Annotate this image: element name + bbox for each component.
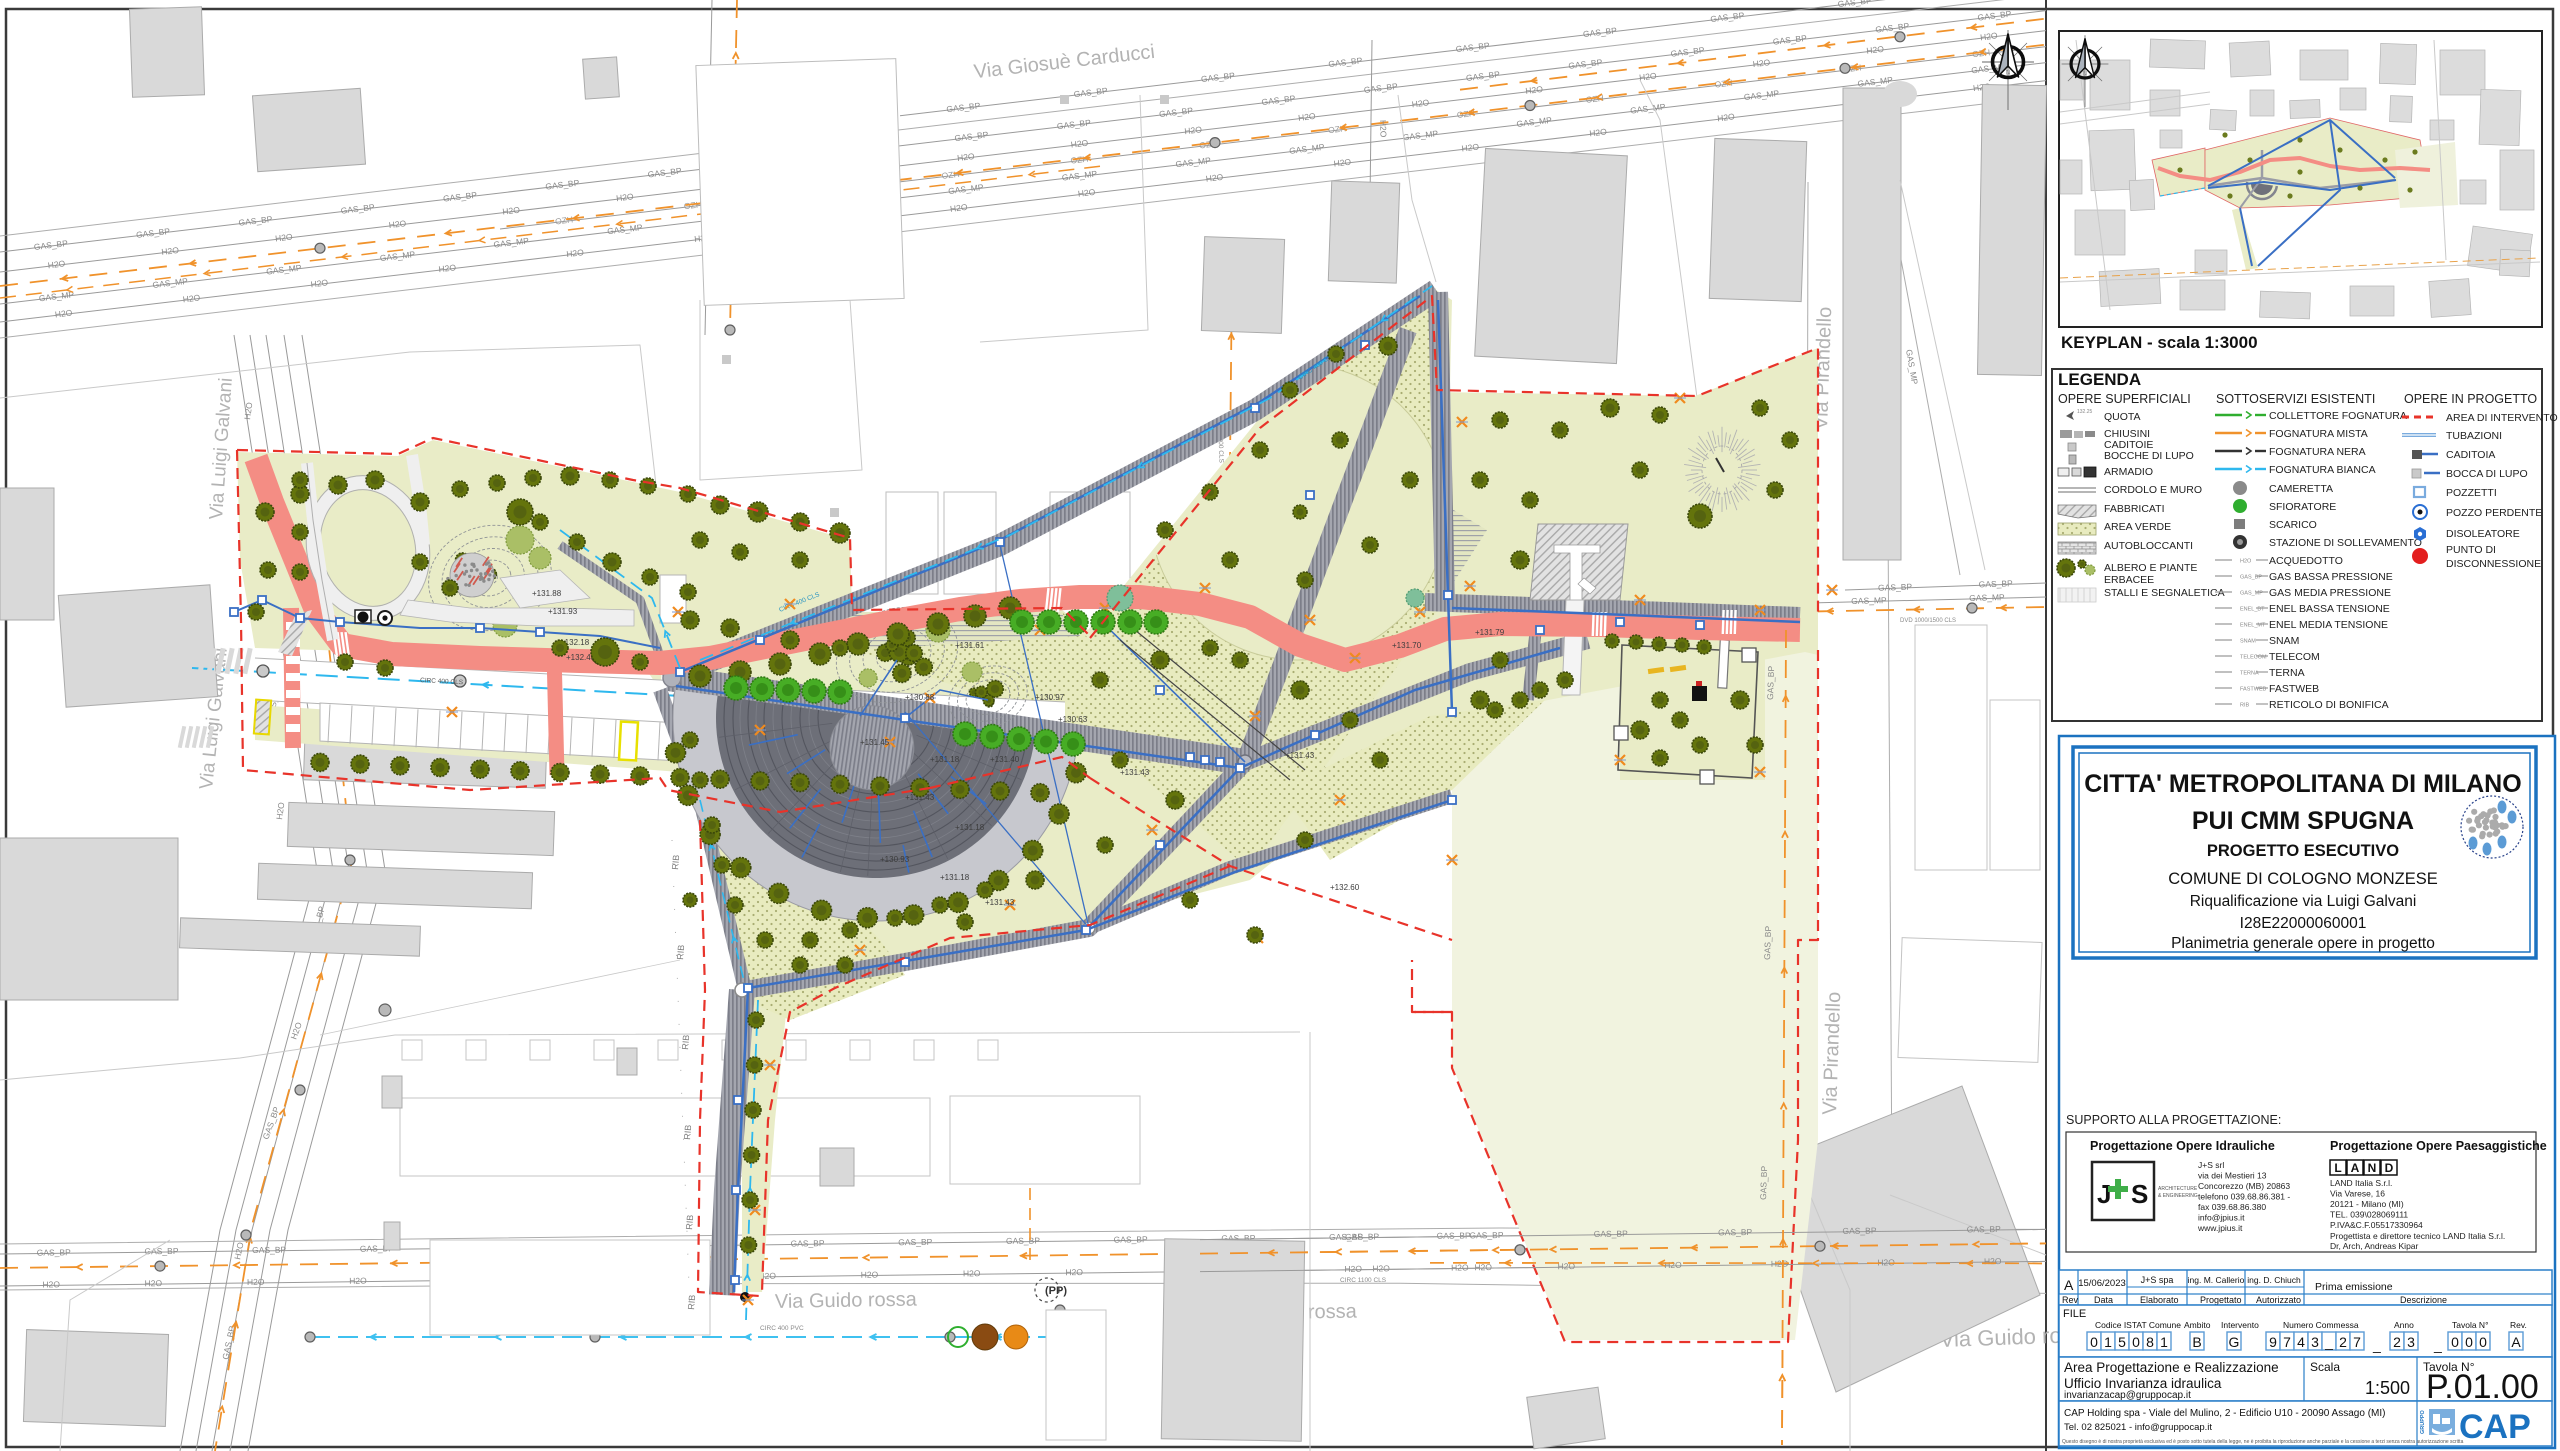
svg-text:H2O: H2O bbox=[1070, 138, 1089, 150]
svg-text:AREA DI INTERVENTO: AREA DI INTERVENTO bbox=[2446, 412, 2558, 424]
svg-text:H2O: H2O bbox=[1333, 157, 1352, 169]
svg-text:STALLI E SEGNALETICA: STALLI E SEGNALETICA bbox=[2104, 587, 2225, 599]
svg-text:TUBAZIONI: TUBAZIONI bbox=[2446, 430, 2502, 442]
svg-text:FASTWEB: FASTWEB bbox=[2269, 683, 2319, 695]
svg-text:3: 3 bbox=[2407, 1334, 2415, 1350]
svg-text:H2O: H2O bbox=[275, 231, 294, 243]
svg-text:RIB: RIB bbox=[675, 944, 686, 960]
svg-text:ALBERO E PIANTE: ALBERO E PIANTE bbox=[2104, 562, 2197, 574]
svg-text:Concorezzo (MB) 20863: Concorezzo (MB) 20863 bbox=[2198, 1181, 2290, 1191]
svg-text:GAS_BP: GAS_BP bbox=[1762, 925, 1773, 960]
svg-text:Autorizzato: Autorizzato bbox=[2256, 1295, 2301, 1305]
svg-text:G: G bbox=[2229, 1334, 2240, 1350]
svg-text:Codice ISTAT Comune: Codice ISTAT Comune bbox=[2095, 1320, 2181, 1330]
svg-text:RIB: RIB bbox=[2240, 703, 2250, 709]
svg-text:CAP Holding spa - Viale del Mu: CAP Holding spa - Viale del Mulino, 2 - … bbox=[2064, 1408, 2385, 1419]
svg-text:CIRC 400 PVC: CIRC 400 PVC bbox=[760, 1325, 804, 1332]
svg-text:H2O: H2O bbox=[47, 258, 66, 270]
svg-text:STAZIONE DI SOLLEVAMENTO: STAZIONE DI SOLLEVAMENTO bbox=[2269, 537, 2422, 549]
svg-text:H2O: H2O bbox=[161, 245, 180, 257]
svg-text:DISOLEATORE: DISOLEATORE bbox=[2446, 528, 2520, 540]
svg-text:GAS_BP: GAS_BP bbox=[1765, 665, 1776, 700]
svg-text:ARMADIO: ARMADIO bbox=[2104, 466, 2153, 478]
svg-text:+132.60: +132.60 bbox=[1330, 883, 1360, 892]
svg-text:Prima emissione: Prima emissione bbox=[2315, 1281, 2393, 1293]
svg-text:1:500: 1:500 bbox=[2365, 1378, 2410, 1398]
svg-text:L: L bbox=[2334, 1161, 2341, 1175]
svg-text:H2O: H2O bbox=[1372, 1263, 1390, 1273]
svg-text:2: 2 bbox=[2393, 1334, 2401, 1350]
svg-text:RIB: RIB bbox=[684, 1214, 695, 1230]
svg-text:1: 1 bbox=[2160, 1334, 2168, 1350]
svg-text:BOCCA DI LUPO: BOCCA DI LUPO bbox=[2446, 468, 2528, 480]
svg-text:H2O: H2O bbox=[54, 307, 73, 319]
svg-text:RIB: RIB bbox=[670, 854, 681, 870]
svg-text:+131.43: +131.43 bbox=[985, 898, 1015, 907]
svg-text:AREA VERDE: AREA VERDE bbox=[2104, 521, 2171, 533]
svg-text:Numero Commessa: Numero Commessa bbox=[2283, 1320, 2359, 1330]
svg-text:DVD 1000/1500 CLS: DVD 1000/1500 CLS bbox=[1900, 618, 1956, 624]
svg-text:H2O: H2O bbox=[1451, 1262, 1469, 1272]
svg-text:SNAM: SNAM bbox=[2269, 635, 2299, 647]
svg-text:AUTOBLOCCANTI: AUTOBLOCCANTI bbox=[2104, 540, 2193, 552]
svg-text:invarianzacap@gruppocap.it: invarianzacap@gruppocap.it bbox=[2064, 1390, 2191, 1401]
svg-text:H2O: H2O bbox=[1378, 120, 1389, 138]
svg-text:GAS_BP: GAS_BP bbox=[1878, 582, 1913, 593]
svg-text:+131.18: +131.18 bbox=[955, 823, 985, 832]
svg-text:_: _ bbox=[2324, 1334, 2333, 1350]
svg-text:N: N bbox=[2368, 1161, 2377, 1175]
svg-text:GAS_BP: GAS_BP bbox=[144, 1246, 178, 1256]
svg-text:Area Progettazione e Realizzaz: Area Progettazione e Realizzazione bbox=[2064, 1360, 2279, 1375]
svg-text:H2O: H2O bbox=[1877, 1257, 1895, 1267]
svg-text:H2O: H2O bbox=[1980, 30, 1999, 42]
svg-text:Data: Data bbox=[2094, 1295, 2113, 1305]
svg-text:3: 3 bbox=[2311, 1334, 2319, 1350]
svg-text:H2O: H2O bbox=[1461, 141, 1480, 153]
svg-text:Rev: Rev bbox=[2062, 1295, 2079, 1305]
svg-text:_: _ bbox=[2372, 1337, 2381, 1353]
svg-text:H2O: H2O bbox=[1866, 44, 1885, 56]
svg-text:PUNTO DI: PUNTO DI bbox=[2446, 544, 2496, 556]
svg-text:GAS_BP: GAS_BP bbox=[1718, 1227, 1752, 1237]
svg-text:Via Guido rossa: Via Guido rossa bbox=[775, 1289, 918, 1313]
svg-text:5: 5 bbox=[2118, 1334, 2126, 1350]
svg-text:8: 8 bbox=[2146, 1334, 2154, 1350]
svg-text:GAS_BP: GAS_BP bbox=[1842, 1225, 1876, 1235]
svg-text:FOGNATURA MISTA: FOGNATURA MISTA bbox=[2269, 428, 2368, 440]
svg-text:GAS_BP: GAS_BP bbox=[1469, 1230, 1503, 1240]
svg-text:+131.40: +131.40 bbox=[990, 755, 1020, 764]
svg-text:H2O: H2O bbox=[1065, 1267, 1083, 1277]
svg-text:H2O: H2O bbox=[861, 1269, 879, 1279]
svg-text:CAMERETTA: CAMERETTA bbox=[2269, 483, 2333, 495]
svg-text:RIB: RIB bbox=[682, 1124, 693, 1140]
svg-text:H2O: H2O bbox=[310, 277, 329, 289]
svg-text:SNAM: SNAM bbox=[2240, 639, 2256, 645]
svg-text:J+S srl: J+S srl bbox=[2198, 1160, 2224, 1170]
svg-text:GAS_BP: GAS_BP bbox=[252, 1245, 286, 1255]
svg-text:4: 4 bbox=[2297, 1334, 2305, 1350]
svg-text:H2O: H2O bbox=[1752, 57, 1771, 69]
svg-text:+131.61: +131.61 bbox=[955, 641, 985, 650]
svg-text:H2O: H2O bbox=[1525, 84, 1544, 96]
svg-text:A: A bbox=[2351, 1161, 2360, 1175]
svg-text:9: 9 bbox=[2269, 1334, 2277, 1350]
svg-text:15/06/2023: 15/06/2023 bbox=[2078, 1278, 2126, 1289]
svg-text:+131.93: +131.93 bbox=[548, 607, 578, 616]
svg-text:H2O: H2O bbox=[1411, 97, 1430, 109]
svg-text:LAND Italia S.r.l.: LAND Italia S.r.l. bbox=[2330, 1178, 2392, 1188]
svg-text:H2O: H2O bbox=[42, 1279, 60, 1289]
svg-text:ing. D. Chiuch: ing. D. Chiuch bbox=[2247, 1275, 2301, 1285]
svg-text:H2O: H2O bbox=[145, 1278, 163, 1288]
svg-text:& ENGINEERING: & ENGINEERING bbox=[2158, 1193, 2198, 1199]
svg-text:GAS_BP: GAS_BP bbox=[790, 1238, 824, 1248]
svg-text:H2O: H2O bbox=[1664, 1260, 1682, 1270]
svg-text:H2O: H2O bbox=[963, 1268, 981, 1278]
svg-text:TELECOM: TELECOM bbox=[2269, 651, 2320, 663]
svg-text:QUOTA: QUOTA bbox=[2104, 411, 2141, 423]
svg-text:www.jpius.it: www.jpius.it bbox=[2197, 1223, 2243, 1233]
svg-text:+130.93: +130.93 bbox=[880, 855, 910, 864]
svg-text:A: A bbox=[2064, 1277, 2074, 1293]
svg-text:H2O: H2O bbox=[1589, 126, 1608, 138]
svg-text:+131.18: +131.18 bbox=[930, 755, 960, 764]
svg-text:GAS_BP: GAS_BP bbox=[1967, 1224, 2001, 1234]
svg-text:PROGETTO ESECUTIVO: PROGETTO ESECUTIVO bbox=[2207, 842, 2399, 860]
svg-text:H2O: H2O bbox=[1344, 1264, 1362, 1274]
svg-text:SUPPORTO ALLA PROGETTAZIONE:: SUPPORTO ALLA PROGETTAZIONE: bbox=[2066, 1113, 2281, 1127]
svg-text:7: 7 bbox=[2283, 1334, 2291, 1350]
svg-text:H2O: H2O bbox=[438, 262, 457, 274]
svg-text:GAS_BP: GAS_BP bbox=[1345, 1231, 1379, 1241]
svg-text:+131.45: +131.45 bbox=[860, 738, 890, 747]
svg-text:via dei Mestieri 13: via dei Mestieri 13 bbox=[2198, 1171, 2267, 1181]
svg-text:GRUPPO: GRUPPO bbox=[2420, 1409, 2426, 1434]
svg-text:fax 039.68.86.380: fax 039.68.86.380 bbox=[2198, 1202, 2266, 1212]
svg-text:CIRC 1100 CLS: CIRC 1100 CLS bbox=[1340, 1277, 1387, 1284]
svg-text:ing. M. Callerio: ing. M. Callerio bbox=[2188, 1275, 2245, 1285]
svg-text:Questo disegno è di nostra pro: Questo disegno è di nostra proprietà esc… bbox=[2062, 1439, 2464, 1445]
svg-text:OPERE IN PROGETTO: OPERE IN PROGETTO bbox=[2404, 392, 2537, 406]
svg-text:H2O: H2O bbox=[1205, 172, 1224, 184]
svg-text:RIB: RIB bbox=[680, 1034, 691, 1050]
svg-text:J: J bbox=[2097, 1179, 2111, 1209]
svg-text:DISCONNESSIONE: DISCONNESSIONE bbox=[2446, 558, 2541, 570]
svg-text:J+S spa: J+S spa bbox=[2141, 1275, 2174, 1285]
svg-text:7: 7 bbox=[2353, 1334, 2361, 1350]
svg-text:FILE: FILE bbox=[2063, 1308, 2086, 1320]
svg-text:ERBACEE: ERBACEE bbox=[2104, 574, 2154, 586]
svg-text:CORDOLO E MURO: CORDOLO E MURO bbox=[2104, 484, 2202, 496]
svg-text:TERNA: TERNA bbox=[2269, 667, 2305, 679]
svg-text:CADITOIA: CADITOIA bbox=[2446, 449, 2495, 461]
svg-text:Progettazione Opere Idrauliche: Progettazione Opere Idrauliche bbox=[2090, 1139, 2275, 1153]
svg-text:GAS_BP: GAS_BP bbox=[1594, 1228, 1628, 1238]
svg-text:20121 - Milano (MI): 20121 - Milano (MI) bbox=[2330, 1199, 2404, 1209]
svg-text:N: N bbox=[2005, 70, 2010, 77]
svg-text:H2O: H2O bbox=[502, 205, 521, 217]
svg-text:2: 2 bbox=[2339, 1334, 2347, 1350]
svg-text:COLLETTORE FOGNATURA: COLLETTORE FOGNATURA bbox=[2269, 410, 2407, 422]
svg-text:GAS_BP: GAS_BP bbox=[1979, 578, 2014, 589]
svg-text:H2O: H2O bbox=[2240, 559, 2252, 565]
svg-text:Planimetria generale opere in: Planimetria generale opere in progetto bbox=[2171, 935, 2435, 952]
svg-text:H2O: H2O bbox=[1639, 70, 1658, 82]
svg-text:Descrizione: Descrizione bbox=[2400, 1295, 2447, 1305]
svg-text:1: 1 bbox=[2104, 1334, 2112, 1350]
svg-text:H2O: H2O bbox=[1717, 111, 1736, 123]
svg-text:GAS_BP: GAS_BP bbox=[1758, 1165, 1769, 1200]
svg-text:FABBRICATI: FABBRICATI bbox=[2104, 503, 2164, 515]
svg-text:I28E22000060001: I28E22000060001 bbox=[2240, 915, 2367, 932]
svg-text:H2O: H2O bbox=[1077, 187, 1096, 199]
svg-text:ENEL BASSA TENSIONE: ENEL BASSA TENSIONE bbox=[2269, 603, 2390, 615]
svg-text:Rev.: Rev. bbox=[2510, 1320, 2527, 1330]
svg-text:Tel. 02 825021 - info@gruppoca: Tel. 02 825021 - info@gruppocap.it bbox=[2064, 1422, 2212, 1433]
svg-text:0: 0 bbox=[2451, 1334, 2459, 1350]
svg-text:H2O: H2O bbox=[1984, 1256, 2002, 1266]
svg-text:telefono 039.68.86.381 -: telefono 039.68.86.381 - bbox=[2198, 1192, 2290, 1202]
svg-text:PUI CMM SPUGNA: PUI CMM SPUGNA bbox=[2192, 807, 2414, 835]
svg-text:+131.70: +131.70 bbox=[1392, 641, 1422, 650]
svg-text:H2O: H2O bbox=[349, 1276, 367, 1286]
svg-text:Scala: Scala bbox=[2310, 1360, 2340, 1374]
svg-text:Intervento: Intervento bbox=[2221, 1320, 2259, 1330]
svg-text:H2O: H2O bbox=[616, 191, 635, 203]
svg-text:GAS_BP: GAS_BP bbox=[1006, 1235, 1040, 1245]
svg-text:H2O: H2O bbox=[957, 151, 976, 163]
svg-text:D: D bbox=[2385, 1161, 2394, 1175]
svg-text:ENEL MEDIA TENSIONE: ENEL MEDIA TENSIONE bbox=[2269, 619, 2388, 631]
svg-text:FOGNATURA BIANCA: FOGNATURA BIANCA bbox=[2269, 464, 2376, 476]
svg-text:0: 0 bbox=[2479, 1334, 2487, 1350]
svg-text:SCARICO: SCARICO bbox=[2269, 519, 2317, 531]
svg-text:GAS BASSA PRESSIONE: GAS BASSA PRESSIONE bbox=[2269, 571, 2393, 583]
svg-text:+131.79: +131.79 bbox=[1475, 628, 1505, 637]
svg-text:+130.97: +130.97 bbox=[1035, 693, 1065, 702]
svg-text:Tavola N°: Tavola N° bbox=[2452, 1320, 2488, 1330]
svg-text:+131.43: +131.43 bbox=[1285, 751, 1315, 760]
svg-text:GAS_BP: GAS_BP bbox=[1114, 1234, 1148, 1244]
svg-text:0: 0 bbox=[2465, 1334, 2473, 1350]
svg-text:+131.88: +131.88 bbox=[532, 589, 562, 598]
svg-text:POZZETTI: POZZETTI bbox=[2446, 487, 2497, 499]
svg-text:Ambito: Ambito bbox=[2184, 1320, 2211, 1330]
svg-text:+130.88: +130.88 bbox=[905, 693, 935, 702]
svg-text:Progettato: Progettato bbox=[2200, 1295, 2242, 1305]
svg-text:Ufficio Invarianza idraulica: Ufficio Invarianza idraulica bbox=[2064, 1376, 2222, 1391]
svg-text:H2O: H2O bbox=[182, 292, 201, 304]
svg-text:CITTA' METROPOLITANA DI MILANO: CITTA' METROPOLITANA DI MILANO bbox=[2084, 770, 2521, 798]
svg-text:Via Varese, 16: Via Varese, 16 bbox=[2330, 1189, 2385, 1199]
svg-text:(PP): (PP) bbox=[1045, 1285, 1067, 1297]
svg-text:H2O: H2O bbox=[949, 202, 968, 214]
svg-text:S: S bbox=[2131, 1179, 2148, 1209]
svg-text:Riqualificazione via Luigi Gal: Riqualificazione via Luigi Galvani bbox=[2190, 893, 2417, 910]
svg-text:H2O: H2O bbox=[388, 218, 407, 230]
svg-text:RIB: RIB bbox=[686, 1294, 697, 1310]
svg-text:_: _ bbox=[2433, 1337, 2442, 1353]
svg-text:GAS_BP: GAS_BP bbox=[1437, 1230, 1471, 1240]
svg-text:OPERE SUPERFICIALI: OPERE SUPERFICIALI bbox=[2058, 392, 2191, 406]
svg-text:Progettista e direttore tecnic: Progettista e direttore tecnico LAND Ita… bbox=[2330, 1231, 2505, 1241]
svg-text:FOGNATURA NERA: FOGNATURA NERA bbox=[2269, 446, 2366, 458]
svg-text:H2O: H2O bbox=[1184, 124, 1203, 136]
svg-text:+131.43: +131.43 bbox=[1120, 768, 1150, 777]
svg-text:ACQUEDOTTO: ACQUEDOTTO bbox=[2269, 555, 2343, 567]
svg-text:GAS_MP: GAS_MP bbox=[1969, 592, 2005, 603]
svg-text:GAS_BP: GAS_BP bbox=[898, 1237, 932, 1247]
svg-text:H2O: H2O bbox=[566, 247, 585, 259]
svg-text:0: 0 bbox=[2132, 1334, 2140, 1350]
svg-text:132.25: 132.25 bbox=[2077, 409, 2093, 415]
svg-text:0: 0 bbox=[2090, 1334, 2098, 1350]
svg-text:B: B bbox=[2192, 1334, 2201, 1350]
svg-text:Elaborato: Elaborato bbox=[2140, 1295, 2179, 1305]
svg-text:SFIORATORE: SFIORATORE bbox=[2269, 501, 2336, 513]
svg-text:Via Pirandello: Via Pirandello bbox=[1819, 991, 1845, 1115]
svg-text:KEYPLAN - scala 1:3000: KEYPLAN - scala 1:3000 bbox=[2061, 333, 2258, 352]
svg-text:BOCCHE DI LUPO: BOCCHE DI LUPO bbox=[2104, 450, 2194, 462]
svg-text:Dr, Arch, Andreas Kipar: Dr, Arch, Andreas Kipar bbox=[2330, 1241, 2419, 1251]
svg-text:ARCHITECTURE: ARCHITECTURE bbox=[2158, 1186, 2198, 1192]
svg-text:Anno: Anno bbox=[2394, 1320, 2414, 1330]
svg-text:+130.63: +130.63 bbox=[1058, 715, 1088, 724]
svg-text:H2O: H2O bbox=[247, 1277, 265, 1287]
svg-text:A: A bbox=[2511, 1334, 2521, 1350]
svg-text:P.IVA&C.F.05517330964: P.IVA&C.F.05517330964 bbox=[2330, 1220, 2423, 1230]
svg-text:RETICOLO DI BONIFICA: RETICOLO DI BONIFICA bbox=[2269, 699, 2389, 711]
svg-text:POZZO PERDENTE: POZZO PERDENTE bbox=[2446, 507, 2542, 519]
svg-text:CAP: CAP bbox=[2459, 1408, 2531, 1446]
svg-text:OZH: OZH bbox=[941, 169, 960, 181]
svg-text:GAS_BP: GAS_BP bbox=[37, 1247, 71, 1257]
svg-text:TEL. 039\028069111: TEL. 039\028069111 bbox=[2330, 1210, 2408, 1220]
svg-text:+131.18: +131.18 bbox=[940, 873, 970, 882]
svg-text:GAS MEDIA PRESSIONE: GAS MEDIA PRESSIONE bbox=[2269, 587, 2391, 599]
svg-text:COMUNE DI COLOGNO MONZESE: COMUNE DI COLOGNO MONZESE bbox=[2168, 870, 2438, 888]
svg-text:OZH: OZH bbox=[555, 214, 574, 226]
svg-text:GAS_MP: GAS_MP bbox=[1851, 595, 1887, 606]
svg-text:LEGENDA: LEGENDA bbox=[2058, 370, 2141, 389]
svg-text:N: N bbox=[2083, 70, 2088, 77]
svg-text:Progettazione Opere Paesaggist: Progettazione Opere Paesaggistiche bbox=[2330, 1139, 2547, 1153]
svg-text:H2O: H2O bbox=[1298, 111, 1317, 123]
svg-text:SOTTOSERVIZI ESISTENTI: SOTTOSERVIZI ESISTENTI bbox=[2216, 392, 2375, 406]
svg-text:info@jpius.it: info@jpius.it bbox=[2198, 1213, 2245, 1223]
